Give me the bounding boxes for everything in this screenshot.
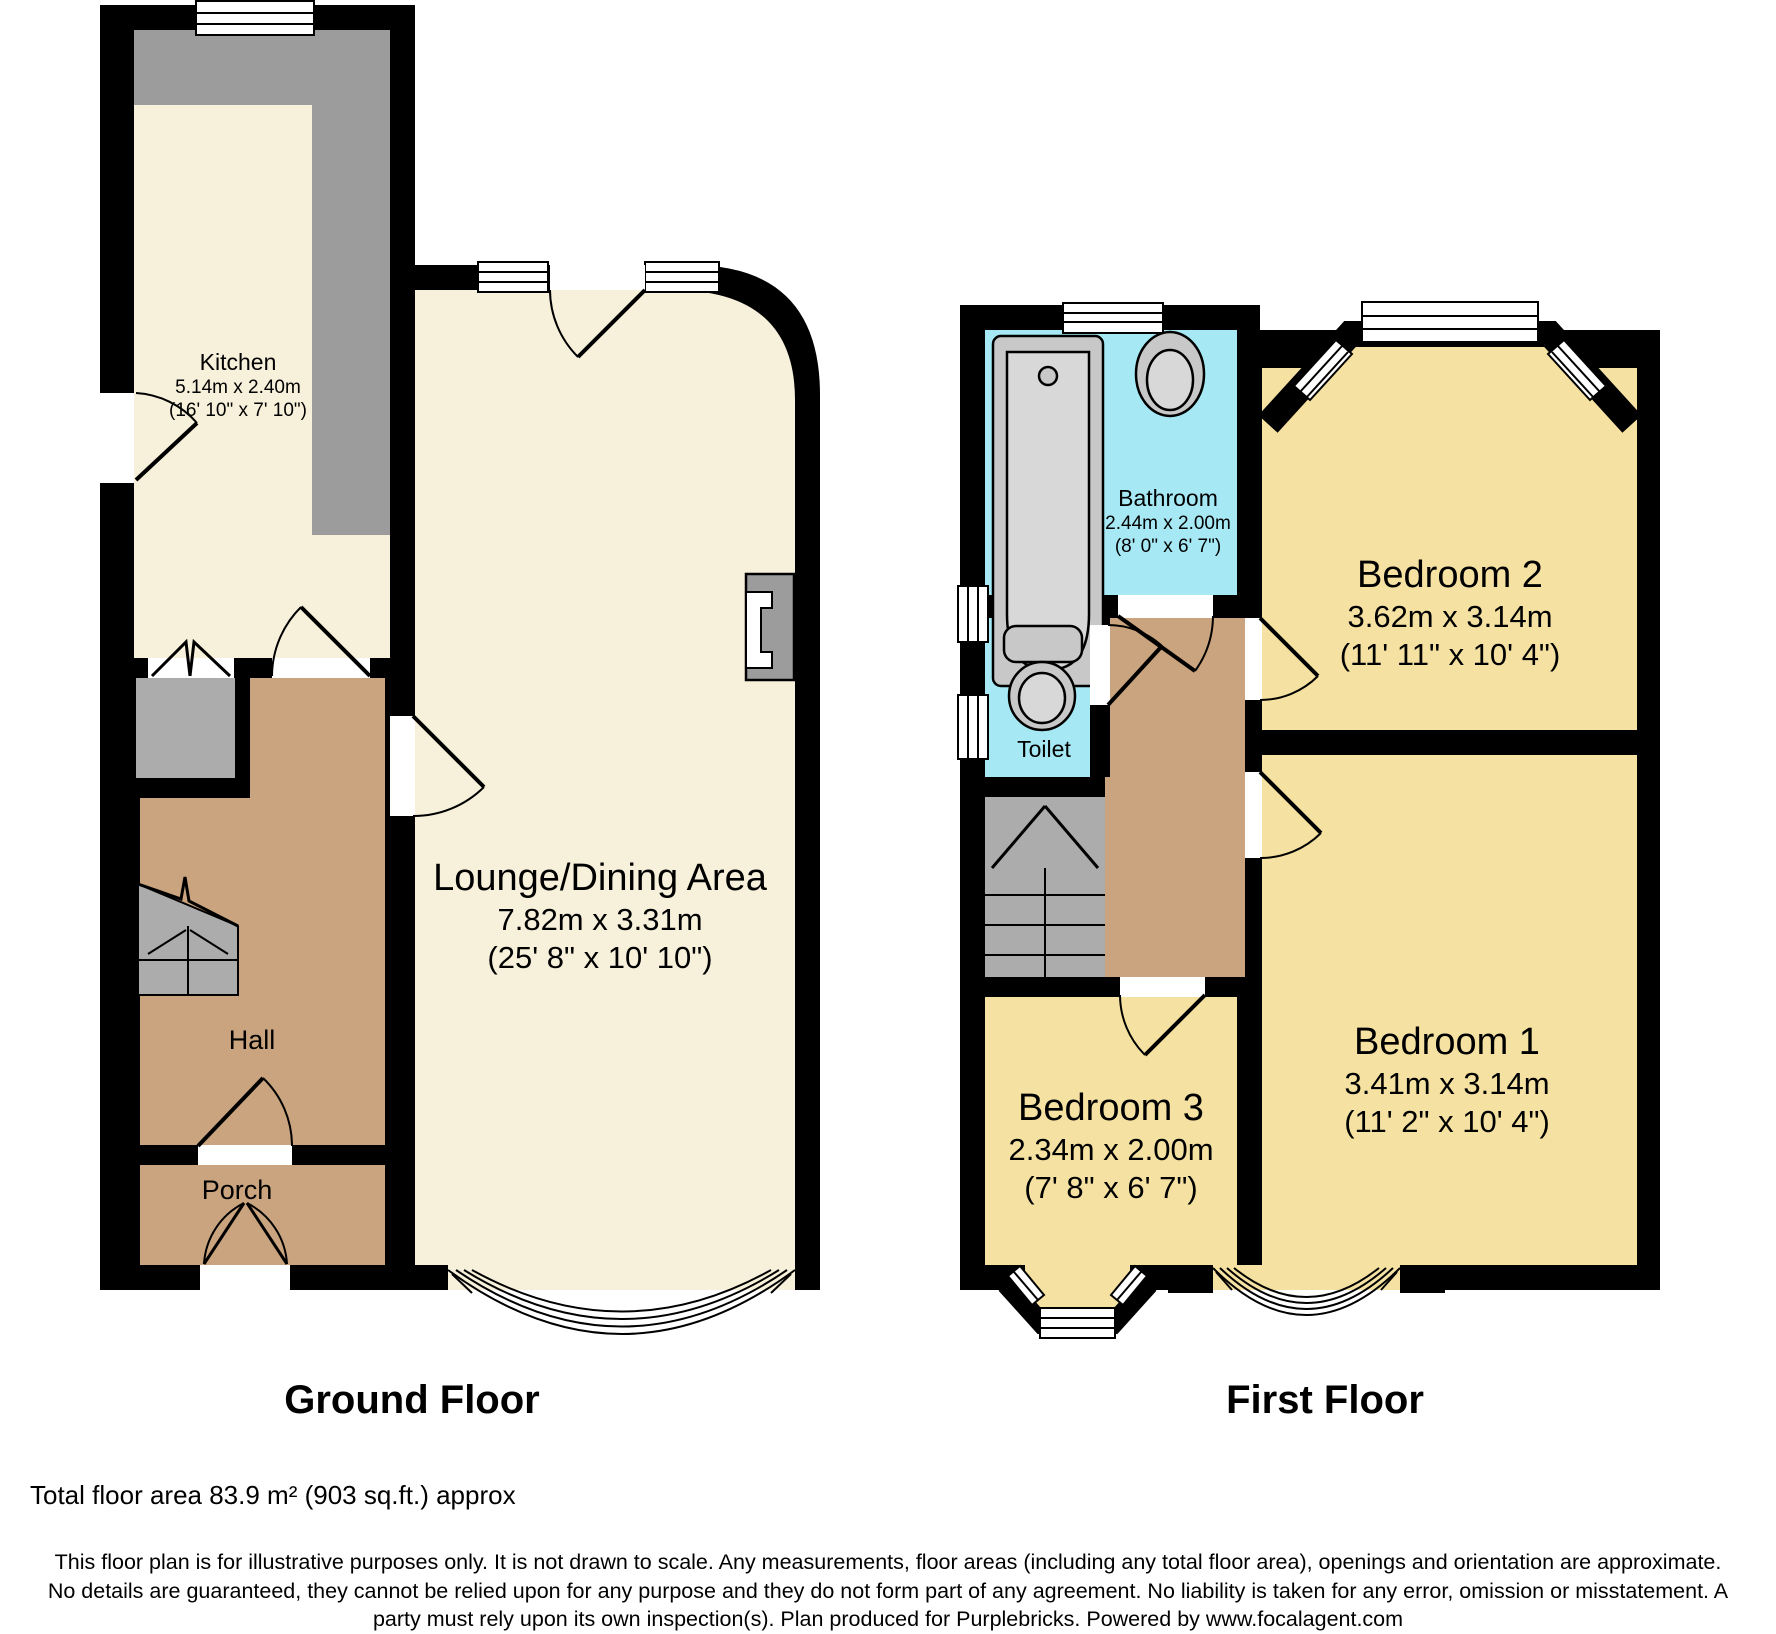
understairs-cupboard (136, 678, 235, 778)
lounge-bow-window (448, 1265, 795, 1334)
fireplace (746, 574, 794, 680)
stairs-first (985, 797, 1105, 977)
bedroom3-label: Bedroom 3 2.34m x 2.00m (7' 8" x 6' 7") (961, 1085, 1261, 1207)
room-name: Bedroom 2 (1270, 552, 1630, 598)
kitchen-floor (134, 30, 390, 658)
lounge-label: Lounge/Dining Area 7.82m x 3.31m (25' 8"… (400, 855, 800, 977)
kitchen-window (196, 1, 314, 35)
room-name: Bedroom 3 (961, 1085, 1261, 1131)
total-floor-area: Total floor area 83.9 m² (903 sq.ft.) ap… (30, 1480, 516, 1511)
room-dim-metric: 2.34m x 2.00m (961, 1131, 1261, 1169)
room-name: Kitchen (118, 348, 358, 376)
lounge-window-left (478, 262, 548, 292)
room-dim-metric: 3.41m x 3.14m (1267, 1065, 1627, 1103)
sink (1136, 332, 1204, 416)
porch-label: Porch (137, 1174, 337, 1207)
room-dim-metric: 7.82m x 3.31m (400, 901, 800, 939)
bedroom2-label: Bedroom 2 3.62m x 3.14m (11' 11" x 10' 4… (1270, 552, 1630, 674)
bedroom2-bay-window (1268, 302, 1632, 424)
bedroom1-label: Bedroom 1 3.41m x 3.14m (11' 2" x 10' 4"… (1267, 1019, 1627, 1141)
disclaimer-text: This floor plan is for illustrative purp… (38, 1548, 1738, 1634)
room-name: Lounge/Dining Area (400, 855, 800, 901)
toilet-fixture (1004, 626, 1082, 730)
first-floor-title: First Floor (1145, 1378, 1505, 1423)
hall-label: Hall (152, 1024, 352, 1057)
room-dim-imperial: (8' 0" x 6' 7") (1068, 535, 1268, 558)
room-dim-metric: 5.14m x 2.40m (118, 376, 358, 399)
room-dim-imperial: (11' 11" x 10' 4") (1270, 636, 1630, 674)
room-name: Porch (137, 1174, 337, 1207)
room-dim-imperial: (11' 2" x 10' 4") (1267, 1103, 1627, 1141)
lounge-window-right (645, 262, 719, 292)
room-dim-imperial: (7' 8" x 6' 7") (961, 1169, 1261, 1207)
toilet-window (958, 586, 988, 642)
room-dim-metric: 3.62m x 3.14m (1270, 598, 1630, 636)
bedroom3-bay-window (1006, 1265, 1149, 1338)
bathroom-window (1063, 303, 1163, 333)
room-name: Toilet (964, 735, 1124, 763)
room-dim-metric: 2.44m x 2.00m (1068, 512, 1268, 535)
ground-floor-title: Ground Floor (232, 1378, 592, 1423)
room-name: Bathroom (1068, 484, 1268, 512)
toilet-label: Toilet (964, 735, 1124, 763)
room-name: Hall (152, 1024, 352, 1057)
bedroom1-bow-window (1168, 1265, 1445, 1315)
kitchen-label: Kitchen 5.14m x 2.40m (16' 10" x 7' 10") (118, 348, 358, 422)
landing-floor (1105, 618, 1245, 977)
bathroom-label: Bathroom 2.44m x 2.00m (8' 0" x 6' 7") (1068, 484, 1268, 558)
room-name: Bedroom 1 (1267, 1019, 1627, 1065)
room-dim-imperial: (16' 10" x 7' 10") (118, 399, 358, 422)
room-dim-imperial: (25' 8" x 10' 10") (400, 939, 800, 977)
ground-floor-plan (100, 1, 820, 1334)
